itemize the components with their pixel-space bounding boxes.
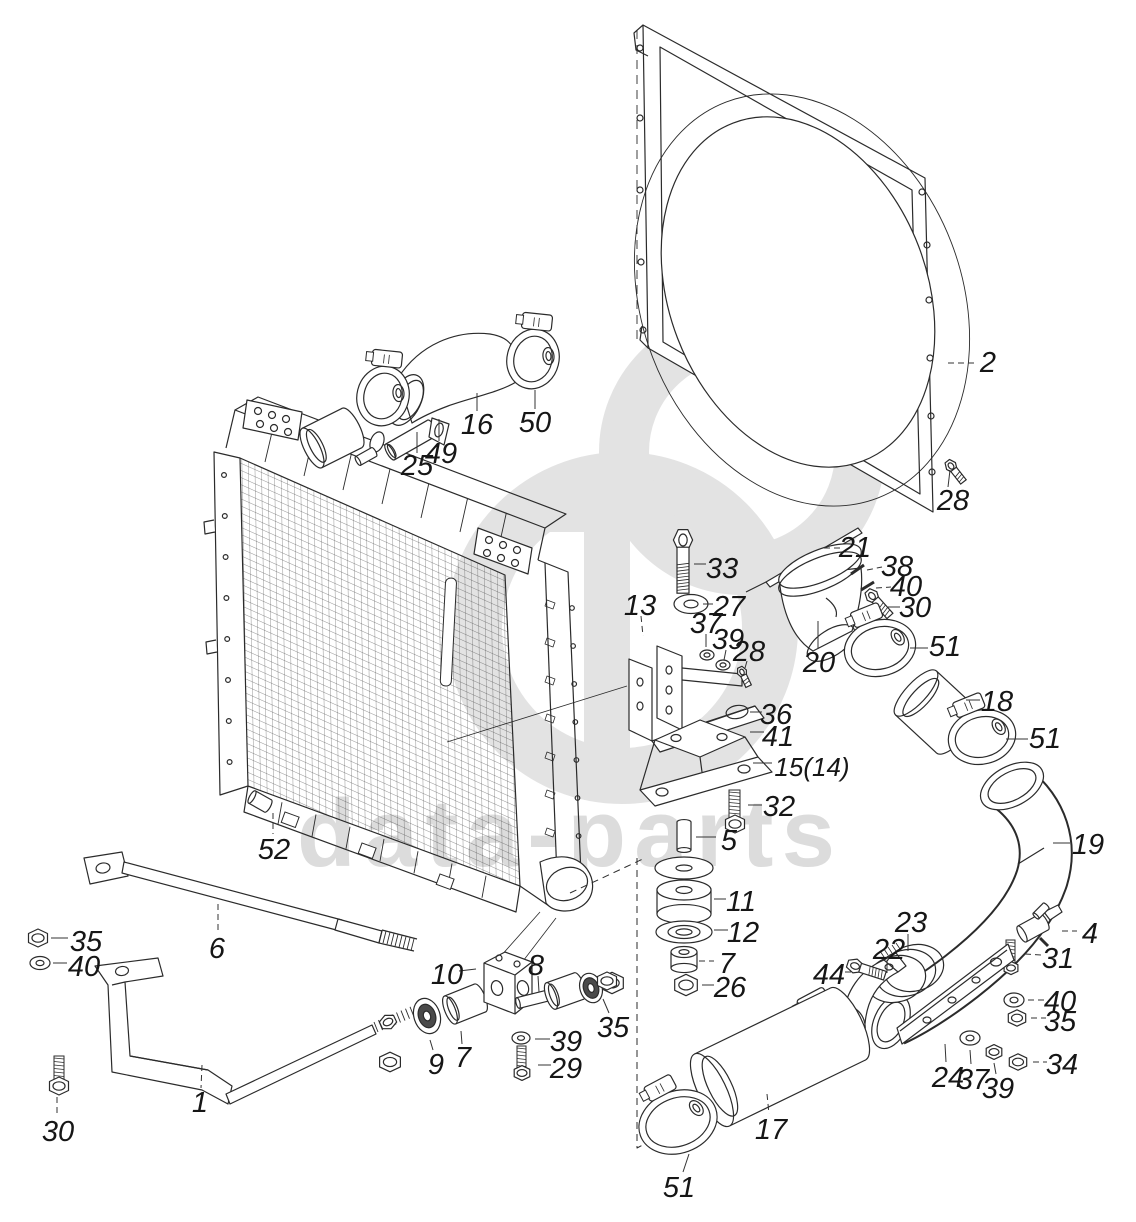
callout-number: 35	[1044, 1006, 1077, 1038]
part-nut-35m	[598, 972, 617, 990]
callout-number: 1	[192, 1087, 208, 1119]
part-washer-40b	[1004, 993, 1024, 1007]
callout-number: 16	[461, 409, 494, 441]
callout-51: 51	[663, 1154, 695, 1204]
part-pipe-19	[864, 752, 1051, 1054]
callout-31: 31	[1025, 943, 1074, 975]
part-washer-39a	[716, 660, 730, 670]
part-bolt-30L	[50, 1056, 69, 1095]
part-pin-40	[861, 582, 874, 590]
leader-line	[1025, 954, 1042, 955]
callout-number: 30	[899, 592, 931, 624]
part-washer-39c	[512, 1032, 530, 1044]
callout-number: 25	[400, 450, 434, 482]
callout-number: 21	[838, 532, 871, 564]
callout-9: 9	[428, 1040, 444, 1081]
callout-number: 39	[982, 1073, 1014, 1105]
callout-number: 26	[713, 972, 747, 1004]
callout-11: 11	[714, 886, 756, 918]
callout-number: 51	[1029, 723, 1061, 755]
callout-number: 44	[813, 959, 845, 991]
callout-number: 12	[727, 917, 759, 949]
callout-12: 12	[714, 917, 759, 949]
callout-number: 9	[428, 1049, 444, 1081]
leader-line	[876, 587, 891, 588]
part-washer-40L	[30, 957, 50, 970]
callout-40: 40	[53, 951, 100, 983]
callout-26: 26	[702, 972, 747, 1004]
callout-number: 7	[455, 1042, 473, 1074]
callout-number: 4	[1082, 918, 1098, 950]
callout-29: 29	[538, 1053, 582, 1085]
part-nut-x	[380, 1052, 401, 1072]
callout-number: 40	[68, 951, 100, 983]
leader-line	[945, 1044, 946, 1062]
callout-number: 15(14)	[774, 752, 849, 782]
callout-number: 34	[1046, 1049, 1078, 1081]
callout-6: 6	[209, 904, 226, 965]
leader-line	[603, 999, 609, 1013]
part-nut-35b	[1008, 1010, 1025, 1026]
callout-7: 7	[455, 1031, 473, 1074]
callout-number: 28	[732, 636, 765, 668]
callout-number: 52	[258, 834, 290, 866]
callout-51: 51	[910, 631, 961, 663]
part-washer-37b	[960, 1031, 980, 1045]
callout-number: 41	[762, 721, 794, 753]
callout-50: 50	[519, 390, 551, 439]
leader-line	[683, 1154, 689, 1172]
callout-number: 51	[929, 631, 961, 663]
callout-number: 10	[431, 959, 463, 991]
callout-number: 29	[549, 1053, 582, 1085]
part-bolt-29	[514, 1046, 530, 1080]
callout-number: 33	[706, 553, 738, 585]
callout-number: 28	[936, 485, 969, 517]
callout-number: 50	[519, 407, 551, 439]
callout-number: 51	[663, 1172, 695, 1204]
callout-number: 20	[802, 647, 835, 679]
callout-number: 13	[624, 590, 656, 622]
callout-number: 22	[872, 934, 905, 966]
callout-30: 30	[42, 1097, 74, 1148]
callout-number: 8	[528, 950, 544, 982]
callout-number: 17	[755, 1114, 789, 1146]
callout-35: 35	[597, 999, 630, 1044]
part-nut-35L	[29, 929, 48, 947]
part-bracket-1	[95, 958, 414, 1104]
callout-2: 2	[948, 347, 996, 379]
callout-number: 5	[721, 825, 738, 857]
callout-number: 32	[763, 791, 795, 823]
callout-number: 35	[597, 1012, 630, 1044]
callout-number: 11	[726, 886, 756, 918]
callout-number: 30	[42, 1116, 74, 1148]
part-bushing-9	[409, 995, 445, 1037]
callout-number: 18	[981, 686, 1013, 718]
callout-35: 35	[1031, 1006, 1077, 1038]
parts-diagram-canvas: data-parts 22850164925332713373928213840…	[0, 0, 1136, 1222]
callout-number: 31	[1042, 943, 1074, 975]
callout-number: 6	[209, 933, 226, 965]
callout-34: 34	[1033, 1049, 1078, 1081]
callout-number: 19	[1072, 829, 1104, 861]
leader-line	[867, 567, 882, 570]
parts-diagram-page: data-parts 22850164925332713373928213840…	[0, 0, 1136, 1222]
callout-number: 2	[979, 347, 996, 379]
callout-28: 28	[732, 636, 765, 668]
part-nut-39b	[986, 1045, 1002, 1060]
part-nut-34	[1009, 1054, 1026, 1070]
leader-line	[970, 1050, 971, 1064]
